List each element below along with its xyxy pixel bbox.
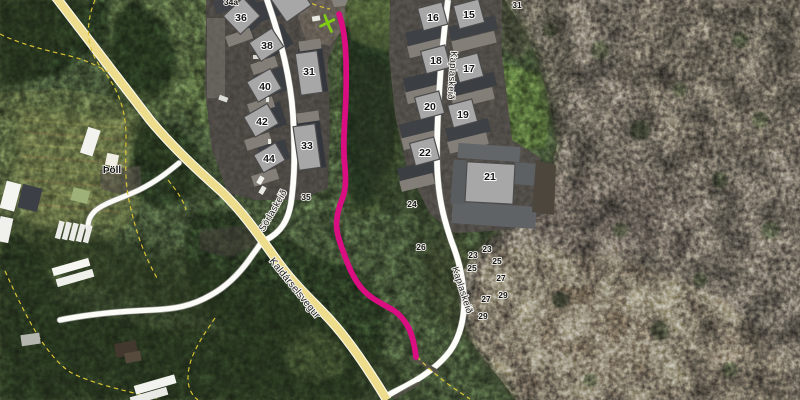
svg-text:27: 27 xyxy=(481,294,491,304)
svg-text:19: 19 xyxy=(457,109,469,121)
svg-text:25: 25 xyxy=(492,256,502,266)
svg-text:24: 24 xyxy=(407,199,417,209)
svg-text:35: 35 xyxy=(301,192,311,202)
svg-text:15: 15 xyxy=(463,9,475,21)
svg-text:16: 16 xyxy=(427,12,439,24)
svg-text:18: 18 xyxy=(430,55,442,67)
svg-text:23: 23 xyxy=(482,244,492,254)
svg-text:42: 42 xyxy=(256,116,268,128)
svg-text:34a: 34a xyxy=(224,0,238,7)
svg-text:27: 27 xyxy=(496,273,506,283)
svg-text:40: 40 xyxy=(259,81,271,93)
svg-text:33: 33 xyxy=(301,140,313,152)
svg-text:29: 29 xyxy=(478,311,488,321)
svg-text:29: 29 xyxy=(498,290,508,300)
svg-text:31: 31 xyxy=(512,0,522,10)
svg-text:25: 25 xyxy=(467,263,477,273)
svg-text:31: 31 xyxy=(303,66,315,78)
svg-text:17: 17 xyxy=(463,63,475,75)
svg-text:22: 22 xyxy=(419,147,431,159)
svg-text:36: 36 xyxy=(235,12,247,24)
svg-text:21: 21 xyxy=(484,171,496,183)
svg-text:26: 26 xyxy=(416,242,426,252)
svg-text:20: 20 xyxy=(424,101,436,113)
svg-text:23: 23 xyxy=(468,250,478,260)
svg-text:Þöll: Þöll xyxy=(103,165,122,176)
svg-text:44: 44 xyxy=(263,153,275,165)
svg-text:38: 38 xyxy=(261,40,273,52)
